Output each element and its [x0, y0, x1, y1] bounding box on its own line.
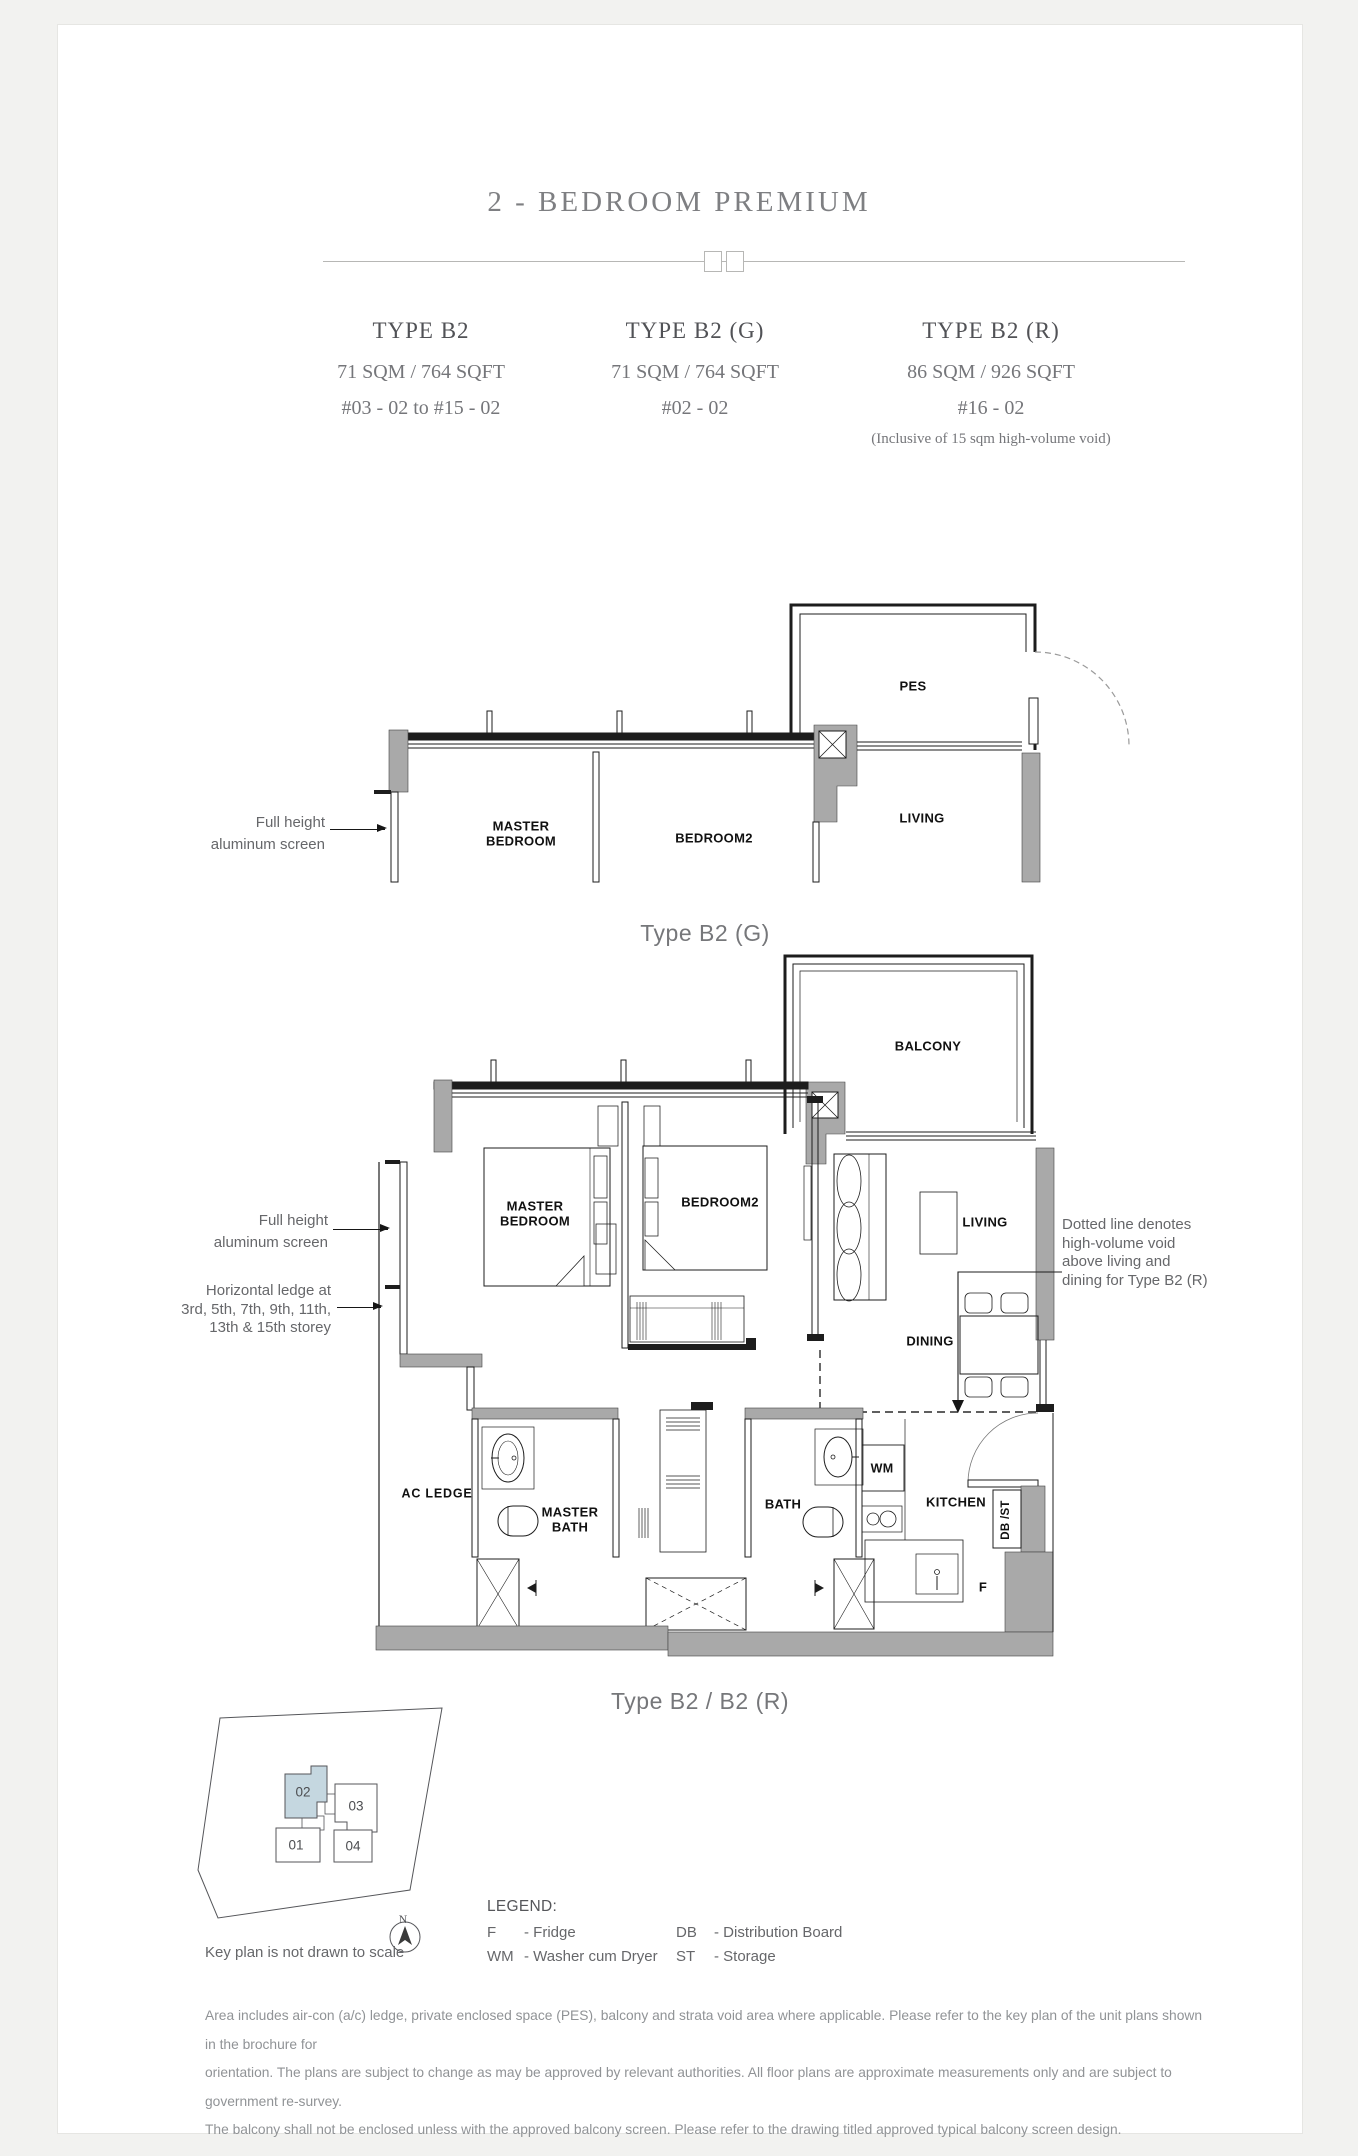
- aluminum-screen: [374, 730, 408, 882]
- room-label-bedroom2: BEDROOM2: [675, 830, 753, 845]
- room-label-master-bedroom: MASTER BEDROOM: [486, 819, 556, 850]
- legend-desc: - Storage: [714, 1948, 917, 1965]
- sofa: [834, 1154, 886, 1301]
- type-area: 86 SQM / 926 SQFT: [821, 361, 1161, 384]
- type-units: #16 - 02: [821, 397, 1161, 420]
- annotation-full-height-screen: Full height aluminum screen: [178, 1210, 328, 1253]
- type-note: (Inclusive of 15 sqm high-volume void): [821, 431, 1161, 448]
- north-label: N: [399, 1912, 408, 1927]
- ac-unit-icon: [812, 1092, 838, 1118]
- legend-desc: - Fridge: [524, 1924, 676, 1941]
- type-column-b2r: TYPE B2 (R) 86 SQM / 926 SQFT #16 - 02 (…: [821, 318, 1161, 448]
- keyplan-drawing: [190, 1700, 470, 1965]
- room-label-fridge: F: [979, 1579, 987, 1594]
- type-column-b2g: TYPE B2 (G) 71 SQM / 764 SQFT #02 - 02: [525, 318, 865, 420]
- keyplan-caption: Key plan is not drawn to scale: [205, 1944, 404, 1961]
- legend: LEGEND: F - Fridge DB - Distribution Boa…: [487, 1898, 917, 1965]
- legend-abbr: WM: [487, 1948, 524, 1965]
- room-label-master-bedroom: MASTER BEDROOM: [500, 1199, 570, 1230]
- room-label-ac-ledge: AC LEDGE: [402, 1487, 473, 1502]
- annotation-horizontal-ledge: Horizontal ledge at 3rd, 5th, 7th, 9th, …: [140, 1282, 331, 1338]
- site-boundary: [198, 1708, 442, 1918]
- room-label-bedroom2: BEDROOM2: [681, 1194, 759, 1209]
- keyplan-unit-01: 01: [288, 1838, 303, 1853]
- bedroom2-bed: [643, 1106, 767, 1270]
- keyplan-unit-02: 02: [295, 1785, 310, 1800]
- horizontal-ledge: [400, 1354, 482, 1367]
- type-name: TYPE B2 (G): [525, 318, 865, 344]
- legend-desc: - Washer cum Dryer: [524, 1948, 676, 1965]
- annotation-full-height-screen: Full height aluminum screen: [175, 812, 325, 855]
- disclaimer-line: orientation. The plans are subject to ch…: [205, 2059, 1210, 2116]
- disclaimer: Area includes air-con (a/c) ledge, priva…: [205, 2002, 1210, 2145]
- legend-desc: - Distribution Board: [714, 1924, 917, 1941]
- corner-wall-block: [434, 1080, 452, 1152]
- plan-main-drawing: [360, 940, 1160, 1675]
- leader-arrow-icon: [330, 829, 385, 830]
- service-duct: [639, 1410, 706, 1552]
- living-right-wall: [1036, 1148, 1054, 1340]
- partition-mbr-br2: [593, 752, 599, 882]
- bedroom2-bench: [630, 1296, 744, 1342]
- legend-abbr: DB: [676, 1924, 714, 1941]
- room-label-living: LIVING: [962, 1214, 1007, 1229]
- title-divider: [323, 261, 1185, 262]
- room-label-wm: WM: [871, 1462, 894, 1477]
- room-label-pes: PES: [900, 678, 927, 693]
- bath-toilet: [803, 1507, 843, 1537]
- masterbath-toilet: [498, 1506, 538, 1536]
- type-name: TYPE B2 (R): [821, 318, 1161, 344]
- room-label-db-st: DB /ST: [1000, 1500, 1014, 1540]
- room-label-kitchen: KITCHEN: [926, 1494, 986, 1509]
- ac-unit-icon: [819, 731, 846, 758]
- masterbath-top-wall: [472, 1408, 618, 1419]
- type-area: 71 SQM / 764 SQFT: [525, 361, 865, 384]
- entrance-door: [968, 1413, 1038, 1487]
- window-wall-band: [434, 1060, 808, 1097]
- dining-set: [960, 1293, 1038, 1397]
- divider-square-icon: [704, 251, 722, 272]
- room-label-balcony: BALCONY: [895, 1038, 961, 1053]
- legend-title: LEGEND:: [487, 1898, 917, 1916]
- keyplan-unit-04: 04: [345, 1839, 360, 1854]
- masterbath-shower: [477, 1559, 536, 1629]
- tv-console: [804, 1166, 811, 1240]
- bedroom2-bottom-wall: [628, 1344, 750, 1350]
- bottom-wall-left: [376, 1626, 668, 1650]
- living-window: [857, 742, 1022, 750]
- kitchen-sink-counter: [865, 1540, 963, 1602]
- room-label-dining: DINING: [906, 1333, 953, 1348]
- partition-mbr-br2: [622, 1102, 628, 1348]
- balcony-window: [846, 1132, 1036, 1140]
- leader-arrow-icon: [333, 1229, 388, 1230]
- partition-br2-living: [813, 822, 819, 882]
- yard-void: [646, 1578, 746, 1630]
- legend-abbr: F: [487, 1924, 524, 1941]
- room-label-master-bath: MASTER BATH: [542, 1505, 599, 1536]
- pes-door-arc: [1029, 652, 1129, 746]
- masterbath-sink: [482, 1427, 534, 1489]
- room-label-bath: BATH: [765, 1496, 801, 1511]
- annotation-void-note: Dotted line denotes high-volume void abo…: [1062, 1216, 1242, 1290]
- type-units: #02 - 02: [525, 397, 865, 420]
- window-wall-band: [400, 711, 814, 748]
- divider-square-icon: [726, 251, 744, 272]
- bottom-wall-right: [668, 1632, 1053, 1656]
- master-bed: [484, 1106, 618, 1286]
- page-title: 2 - BEDROOM PREMIUM: [0, 186, 1358, 219]
- coffee-table: [920, 1192, 957, 1254]
- plan-g-drawing: [360, 590, 1160, 920]
- keyplan-unit-03: 03: [348, 1799, 363, 1814]
- hob: [862, 1506, 902, 1532]
- leader-arrow-icon: [337, 1307, 381, 1308]
- plan-main-caption: Type B2 / B2 (R): [611, 1688, 789, 1715]
- legend-abbr: ST: [676, 1948, 714, 1965]
- disclaimer-line: The balcony shall not be enclosed unless…: [205, 2116, 1210, 2145]
- brochure-page: 2 - BEDROOM PREMIUM TYPE B2 71 SQM / 764…: [0, 0, 1358, 2156]
- void-dashed-line: [820, 1350, 1036, 1412]
- disclaimer-line: Area includes air-con (a/c) ledge, priva…: [205, 2002, 1210, 2059]
- room-label-living: LIVING: [899, 810, 944, 825]
- living-right-wall: [1022, 753, 1040, 882]
- bath-top-wall: [745, 1408, 863, 1419]
